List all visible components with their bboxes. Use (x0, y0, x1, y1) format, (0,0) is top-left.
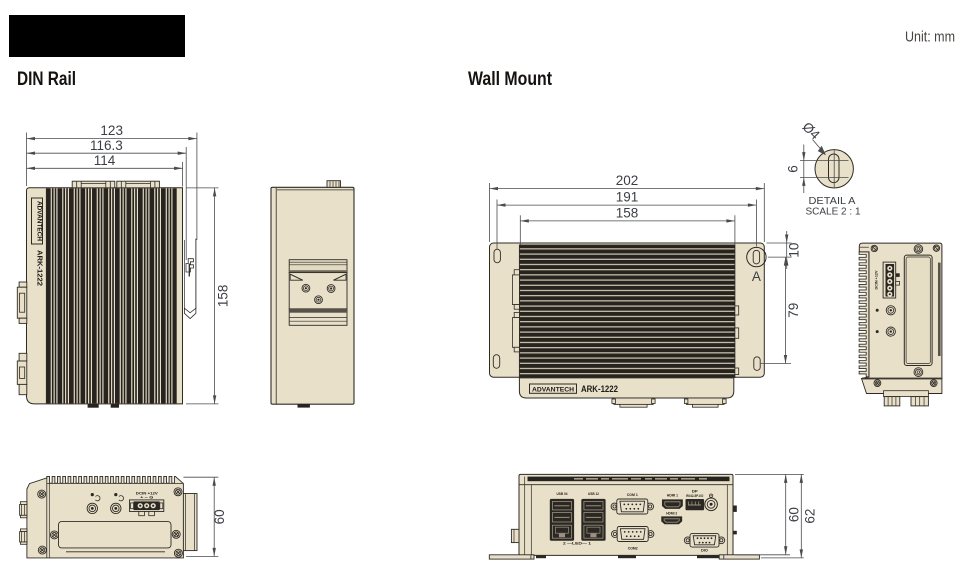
svg-text:RI/42-5P-I/O: RI/42-5P-I/O (686, 494, 703, 498)
svg-text:+ − G: + − G (140, 494, 153, 499)
svg-text:60: 60 (212, 509, 227, 524)
svg-text:Wall Mount: Wall Mount (468, 68, 552, 90)
svg-text:DCIN +12V: DCIN +12V (875, 270, 879, 290)
svg-text:6: 6 (786, 165, 801, 173)
svg-text:DIN Rail: DIN Rail (17, 68, 76, 90)
svg-text:COM 1: COM 1 (627, 492, 639, 497)
svg-text:HDMI 2: HDMI 2 (666, 511, 678, 516)
svg-text:158: 158 (215, 285, 230, 308)
svg-text:116.3: 116.3 (90, 138, 123, 153)
svg-text:DP: DP (692, 489, 699, 493)
svg-text:DIO: DIO (701, 547, 708, 552)
svg-text:158: 158 (616, 206, 639, 221)
svg-text:COM2: COM2 (628, 546, 639, 551)
svg-text:191: 191 (616, 190, 639, 205)
svg-text:10: 10 (786, 243, 801, 258)
svg-text:ARK-1222: ARK-1222 (581, 384, 618, 394)
svg-text:ARK-1222: ARK-1222 (36, 250, 45, 286)
svg-text:A: A (752, 269, 761, 284)
svg-text:62: 62 (802, 509, 817, 524)
svg-text:202: 202 (616, 173, 639, 188)
svg-text:USB 12: USB 12 (588, 491, 600, 496)
svg-text:2 —LED— 1: 2 —LED— 1 (563, 541, 592, 546)
svg-text:60: 60 (786, 507, 801, 522)
svg-text:79: 79 (786, 303, 801, 318)
svg-text:ADVANTECH: ADVANTECH (36, 201, 43, 241)
svg-text:SCALE 2 : 1: SCALE 2 : 1 (806, 206, 861, 218)
svg-text:123: 123 (100, 123, 123, 138)
svg-text:Unit: mm: Unit: mm (905, 29, 955, 46)
svg-text:HDMI 1: HDMI 1 (667, 492, 679, 497)
svg-text:114: 114 (94, 153, 116, 168)
svg-text:USB 04: USB 04 (557, 491, 569, 496)
svg-text:ADVANTECH: ADVANTECH (532, 386, 574, 393)
